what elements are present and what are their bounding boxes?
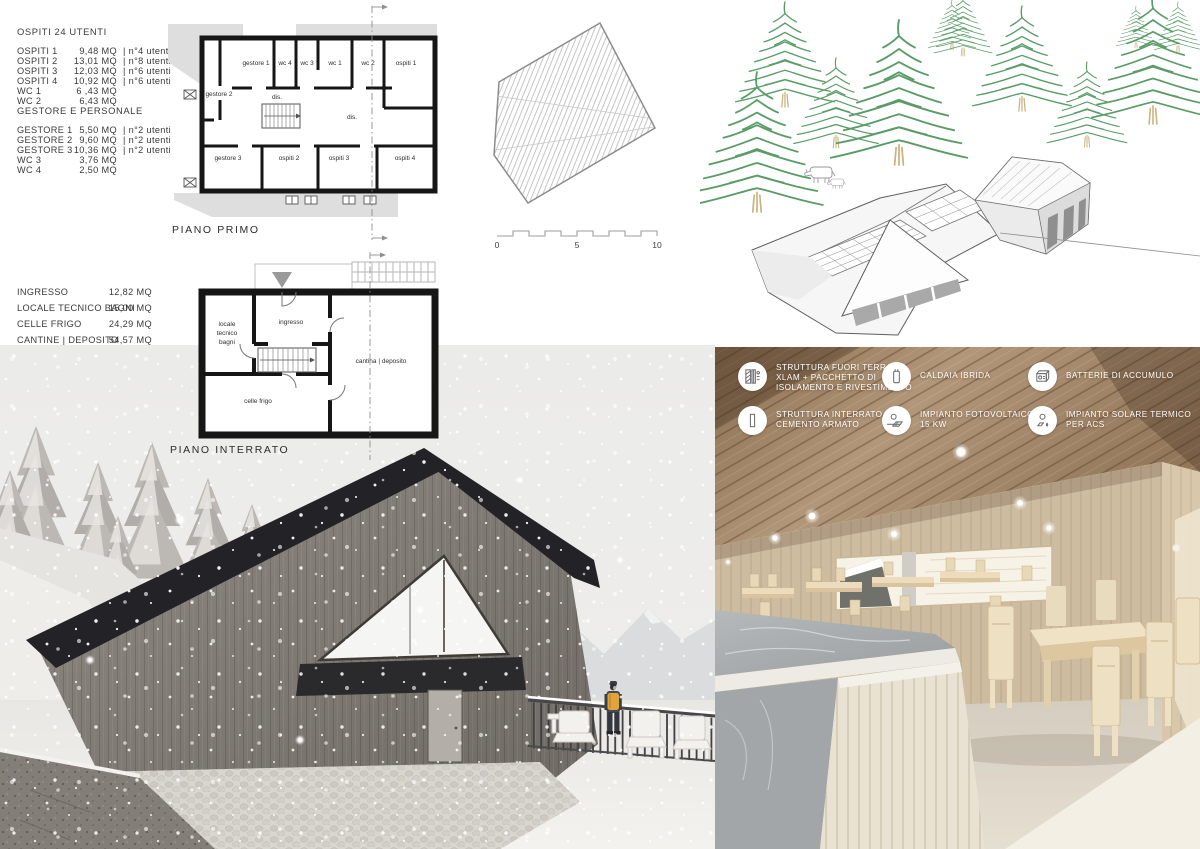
room-label: ospiti 3	[329, 155, 350, 162]
competition-board: OSPITI 24 UTENTI OSPITI 19,48 MQ| n°4 ut…	[0, 0, 1200, 849]
room-area: 5,50 MQ	[71, 125, 117, 135]
roof-plan-drawing: 0 5 10	[480, 10, 680, 255]
system-label: IMPIANTO FOTOVOLTAICO15 KW	[920, 406, 1034, 430]
room-name: OSPITI 1	[17, 46, 71, 56]
room-area: 24,29 MQ	[106, 316, 152, 332]
legend-row: LOCALE TECNICO BAGNI15,00 MQ	[17, 300, 152, 316]
axonometric-drawing	[700, 0, 1200, 347]
room-label: wc 4	[277, 60, 292, 67]
room-name: WC 1	[17, 86, 71, 96]
room-area: 9,48 MQ	[71, 46, 117, 56]
solar-thermal-icon	[1028, 406, 1057, 435]
plan-piano-interrato-drawing: locale tecnico bagni ingresso cantina | …	[160, 248, 470, 463]
room-area: 15,00 MQ	[106, 300, 152, 316]
room-label: ospiti 1	[396, 60, 417, 67]
room-name: GESTORE 2	[17, 135, 71, 145]
room-label: locale	[219, 321, 236, 328]
room-name: LOCALE TECNICO BAGNI	[17, 300, 103, 316]
room-name: WC 4	[17, 165, 71, 175]
room-label: ospiti 2	[279, 155, 300, 162]
room-name: GESTORE 3	[17, 145, 71, 155]
room-area: 13,01 MQ	[71, 56, 117, 66]
room-name: INGRESSO	[17, 284, 103, 300]
system-label: STRUTTURA INTERRATOCEMENTO ARMATO	[776, 406, 883, 430]
legend-row: GESTORE 310,36 MQ| n°2 utenti	[17, 145, 171, 155]
entrance-arrow	[272, 272, 292, 288]
room-name: GESTORE 1	[17, 125, 71, 135]
room-area: 2,50 MQ	[71, 165, 117, 175]
legend-interrato: INGRESSO12,82 MQ LOCALE TECNICO BAGNI15,…	[17, 284, 152, 348]
wall-sconce	[724, 558, 732, 566]
room-name: OSPITI 4	[17, 76, 71, 86]
room-name: CELLE FRIGO	[17, 316, 103, 332]
staircase	[262, 104, 301, 128]
pine-trees	[700, 0, 1200, 212]
storage-battery-icon	[1028, 362, 1057, 391]
room-area: 9,60 MQ	[71, 135, 117, 145]
room-name: OSPITI 2	[17, 56, 71, 66]
room-label: wc 2	[360, 60, 375, 67]
legend-row: OSPITI 312,03 MQ| n°6 utenti	[17, 66, 171, 76]
room-name: OSPITI 3	[17, 66, 71, 76]
room-label: wc 3	[299, 60, 314, 67]
photovoltaic-icon	[882, 406, 911, 435]
system-item-caldaia: CALDAIA IBRIDA	[882, 362, 990, 391]
legend-row: WC 42,50 MQ	[17, 165, 171, 175]
scale-label-10: 10	[652, 240, 662, 250]
legend-row: GESTORE 29,60 MQ| n°2 utenti	[17, 135, 171, 145]
scale-label-5: 5	[575, 240, 580, 250]
legend-row: GESTORE 15,50 MQ| n°2 utenti	[17, 125, 171, 135]
roof-polygon	[494, 23, 655, 203]
plan-primo-label: PIANO PRIMO	[172, 224, 260, 236]
legend-ospiti-title: OSPITI 24 UTENTI	[17, 26, 171, 37]
legend-gestore-title: GESTORE E PERSONALE	[17, 105, 171, 116]
hybrid-boiler-icon	[882, 362, 911, 391]
room-area: 3,76 MQ	[71, 155, 117, 165]
legend-row: OSPITI 213,01 MQ| n°8 utenti	[17, 56, 171, 66]
room-name: WC 3	[17, 155, 71, 165]
external-stair	[352, 262, 435, 282]
scale-label-0: 0	[495, 240, 500, 250]
room-label: gestore 3	[214, 155, 241, 162]
room-label: bagni	[219, 339, 235, 346]
legend-row: WC 16 ,43 MQ	[17, 86, 171, 96]
legend-row: WC 33,76 MQ	[17, 155, 171, 165]
plan-piano-primo-drawing: gestore 1 wc 4 wc 3 wc 1 wc 2 ospiti 1 g…	[160, 0, 470, 250]
room-label: celle frigo	[244, 398, 272, 405]
room-area: 6 ,43 MQ	[71, 86, 117, 96]
plan-interrato-label: PIANO INTERRATO	[170, 444, 289, 456]
room-label: cantina | deposito	[356, 358, 407, 365]
system-label: IMPIANTO SOLARE TERMICOPER ACS	[1066, 406, 1191, 430]
xlam-wall-icon	[738, 362, 767, 391]
reinforced-concrete-icon	[738, 406, 767, 435]
system-item-interrato: STRUTTURA INTERRATOCEMENTO ARMATO	[738, 406, 883, 435]
legend-row: OSPITI 19,48 MQ| n°4 utenti	[17, 46, 171, 56]
room-label: wc 1	[327, 60, 342, 67]
system-label: CALDAIA IBRIDA	[920, 362, 990, 381]
annex-building-axon	[975, 157, 1090, 254]
room-label: dis.	[272, 94, 282, 101]
staircase	[258, 348, 316, 372]
room-area: 10,92 MQ	[71, 76, 117, 86]
system-item-fotovoltaico: IMPIANTO FOTOVOLTAICO15 KW	[882, 406, 1034, 435]
legend-row: INGRESSO12,82 MQ	[17, 284, 152, 300]
canopy-outline	[255, 264, 352, 290]
system-item-solare-termico: IMPIANTO SOLARE TERMICOPER ACS	[1028, 406, 1191, 435]
main-building-axon	[752, 184, 1000, 335]
legend-ospiti: OSPITI 24 UTENTI OSPITI 19,48 MQ| n°4 ut…	[17, 26, 171, 107]
room-label: tecnico	[217, 330, 238, 337]
legend-row: OSPITI 410,92 MQ| n°6 utenti	[17, 76, 171, 86]
wall-sconce	[1171, 543, 1181, 553]
room-label: gestore 1	[242, 60, 269, 67]
system-label: BATTERIE DI ACCUMULO	[1066, 362, 1174, 381]
scale-bar: 0 5 10	[495, 231, 662, 250]
room-label: ingresso	[279, 319, 304, 326]
room-area: 12,82 MQ	[106, 284, 152, 300]
room-label: gestore 2	[205, 91, 232, 98]
system-item-batterie: BATTERIE DI ACCUMULO	[1028, 362, 1174, 391]
legend-row: CELLE FRIGO24,29 MQ	[17, 316, 152, 332]
room-label: ospiti 4	[395, 155, 416, 162]
legend-gestore: GESTORE E PERSONALE GESTORE 15,50 MQ| n°…	[17, 105, 171, 175]
room-label: dis.	[347, 114, 357, 121]
marble-counter	[715, 610, 985, 849]
room-area: 12,03 MQ	[71, 66, 117, 76]
room-area: 10,36 MQ	[71, 145, 117, 155]
